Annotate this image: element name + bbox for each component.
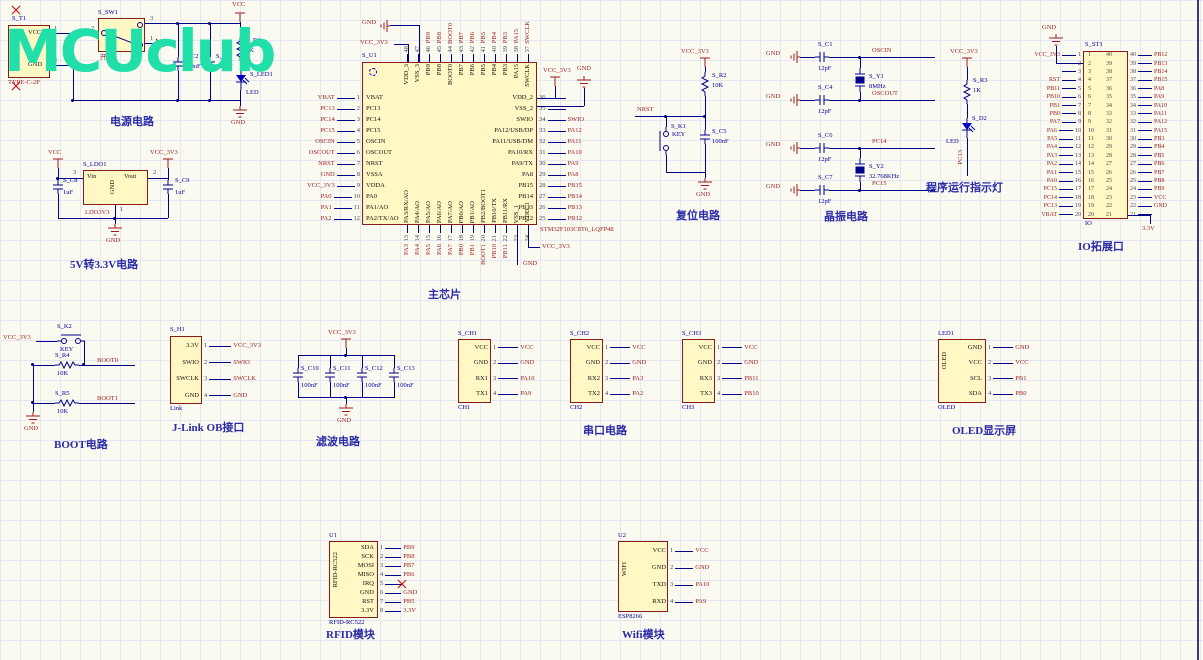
- pin-number: 7: [1086, 103, 1093, 109]
- net-label[interactable]: SWIO: [231, 360, 252, 367]
- net-label[interactable]: OSCOUT: [307, 150, 337, 157]
- net-label[interactable]: VCC_3V3: [950, 49, 978, 56]
- pin-name: SDA: [361, 545, 374, 552]
- pin-number: 9: [1076, 119, 1083, 125]
- net-label[interactable]: PA5: [426, 244, 433, 255]
- net-label[interactable]: PA3: [404, 244, 411, 255]
- pin-wire: [1059, 172, 1073, 173]
- pin-name: PA3/RX/AO: [404, 190, 411, 223]
- net-label[interactable]: PA10: [693, 582, 711, 589]
- net-label[interactable]: PB10: [1045, 94, 1062, 100]
- part-side-label: WIFI: [622, 562, 629, 576]
- pin-number: 2: [202, 360, 209, 367]
- schematic-sheet: S_T1 VCC GND 1 2 TYPE-C-2P S_SW1 2 3 1 开…: [0, 0, 1203, 660]
- section-caption: 5V转3.3V电路: [70, 260, 138, 271]
- net-label[interactable]: PA5: [1045, 136, 1059, 142]
- pin-number: 32: [1128, 119, 1138, 125]
- net-label[interactable]: GND: [106, 238, 120, 245]
- pin-wire: [385, 548, 401, 549]
- pin-name: PA10/RX: [508, 150, 533, 157]
- pin-name: VDDA: [366, 183, 385, 190]
- pin-number: 2: [668, 565, 675, 572]
- net-label[interactable]: PB1: [1048, 103, 1062, 109]
- gnd-symbol: [576, 76, 592, 88]
- net-label[interactable]: VCC: [693, 548, 710, 555]
- pin-wire: [1138, 113, 1152, 114]
- net-label[interactable]: GND: [362, 20, 376, 27]
- pin-number: 20: [1073, 212, 1083, 218]
- pin-number: 16: [1073, 178, 1083, 184]
- net-label[interactable]: PB0: [1048, 111, 1062, 117]
- net-label[interactable]: GND: [742, 360, 760, 367]
- pin-number: 5: [1086, 86, 1093, 92]
- pin-name: VCC: [475, 345, 488, 352]
- net-label[interactable]: PB8: [1152, 178, 1166, 184]
- section-caption: 程序运行指示灯: [926, 183, 1003, 194]
- wire: [394, 382, 395, 397]
- pin-number: 41: [481, 46, 488, 53]
- pin-wire: [1059, 206, 1073, 207]
- pin-wire: [993, 363, 1013, 364]
- pin-number: 27: [537, 194, 548, 201]
- designator: S_CH3: [682, 331, 701, 338]
- io-inside-left-numbers: 1234567891011121314151617181920: [1086, 51, 1098, 219]
- net-label[interactable]: PB9: [401, 545, 416, 552]
- net-label[interactable]: VCC_3V3: [150, 150, 178, 157]
- net-label[interactable]: VCC: [1013, 360, 1030, 367]
- value: KEY: [672, 132, 685, 139]
- net-label[interactable]: GND: [24, 426, 38, 433]
- junction-dot: [344, 354, 347, 357]
- wire: [362, 355, 363, 368]
- net-label[interactable]: OSCIN: [313, 139, 337, 146]
- net-label[interactable]: PA10: [1152, 103, 1169, 109]
- capacitor-symbol[interactable]: [815, 94, 829, 106]
- pin-number: 3: [491, 376, 498, 383]
- wire: [330, 355, 331, 368]
- wire: [168, 194, 169, 218]
- net-label[interactable]: PA0: [1045, 178, 1059, 184]
- pin-wire: [722, 363, 742, 364]
- net-label[interactable]: PC15: [1042, 186, 1059, 192]
- net-label[interactable]: VBAT: [1039, 212, 1059, 218]
- net-label[interactable]: PC14: [318, 117, 336, 124]
- net-label[interactable]: GND: [766, 184, 780, 191]
- pin-wire: [548, 153, 566, 154]
- net-label[interactable]: VCC: [232, 2, 245, 9]
- net-label[interactable]: PB9: [426, 32, 433, 43]
- net-label[interactable]: SWIO: [566, 117, 587, 124]
- net-label[interactable]: PB7: [401, 563, 416, 570]
- wire: [800, 57, 815, 58]
- net-label[interactable]: PB11: [742, 376, 760, 383]
- net-label[interactable]: PB5: [401, 599, 416, 606]
- pin-wire: [484, 225, 485, 233]
- net-label[interactable]: 3.3V: [401, 608, 418, 615]
- net-label[interactable]: VCC_3V3: [3, 335, 31, 342]
- net-label[interactable]: PB0: [1013, 391, 1028, 398]
- net-label[interactable]: PB3: [1152, 136, 1166, 142]
- pin-number: 14: [1073, 161, 1083, 167]
- net-label[interactable]: PB12: [1152, 52, 1169, 58]
- net-label[interactable]: VCC_3V3: [305, 183, 337, 190]
- pin-wire: [385, 575, 401, 576]
- pin-number: 8: [378, 608, 385, 615]
- pin-name: MISO: [358, 572, 374, 579]
- wire: [346, 397, 347, 404]
- net-label[interactable]: VCC_3V3: [360, 40, 388, 47]
- pin-wire: [495, 225, 496, 233]
- net-label[interactable]: PB8: [437, 32, 444, 43]
- net-label[interactable]: PA2: [630, 391, 645, 398]
- wire: [517, 225, 518, 265]
- value: 10K: [712, 83, 723, 90]
- net-label[interactable]: VCC: [630, 345, 647, 352]
- net-label[interactable]: PB10: [492, 244, 499, 258]
- net-label[interactable]: VCC_3V3: [543, 68, 571, 75]
- net-label[interactable]: PB5: [481, 32, 488, 43]
- net-label[interactable]: PB1: [470, 244, 477, 255]
- wire: [666, 155, 667, 172]
- net-label[interactable]: PC14: [1042, 195, 1059, 201]
- pin-name: PB1/AO: [470, 201, 477, 223]
- net-label[interactable]: PA4: [415, 244, 422, 255]
- key-button-symbol[interactable]: [658, 127, 670, 155]
- net-label[interactable]: PA15: [1152, 128, 1169, 134]
- designator: S_C6: [818, 133, 832, 140]
- sheet-border: [1197, 0, 1199, 660]
- capacitor-symbol[interactable]: [815, 142, 829, 154]
- net-label[interactable]: PB13: [566, 205, 584, 212]
- resistor-symbol[interactable]: [55, 361, 79, 369]
- pin-wire: [1062, 55, 1076, 56]
- pin-number: 38: [1128, 69, 1138, 75]
- value: 100nF: [712, 139, 729, 146]
- wire: [1128, 215, 1150, 216]
- gnd-symbol: [788, 182, 800, 198]
- wire: [58, 194, 59, 218]
- pin-number: 4: [378, 572, 385, 579]
- pin-wire: [1138, 197, 1152, 198]
- net-label[interactable]: OSCOUT: [872, 91, 898, 98]
- net-label[interactable]: PA9: [566, 161, 581, 168]
- pin-wire: [407, 225, 408, 233]
- pin-wire: [1138, 130, 1152, 131]
- pin-number: 1: [118, 207, 125, 214]
- net-label[interactable]: PB3: [503, 32, 510, 43]
- pin-number: 2: [151, 170, 158, 177]
- wifi-pin-names: VCCGNDTXDRXD: [641, 543, 666, 611]
- net-label[interactable]: PB9: [1152, 186, 1166, 192]
- pin-number: 29: [1104, 144, 1114, 150]
- pin-number: 22: [1104, 203, 1114, 209]
- net-label[interactable]: PB7: [1152, 170, 1166, 176]
- net-label[interactable]: PA4: [1045, 144, 1059, 150]
- key-button-symbol[interactable]: [57, 332, 85, 344]
- section-caption: 滤波电路: [316, 437, 360, 448]
- net-label[interactable]: GND: [1042, 25, 1056, 32]
- net-label[interactable]: PA2: [1045, 161, 1059, 167]
- pin-wire: [1138, 80, 1152, 81]
- designator: U2: [618, 533, 626, 540]
- net-label[interactable]: PC13: [318, 106, 336, 113]
- pin-wire: [1138, 164, 1152, 165]
- net-label[interactable]: GND: [518, 360, 536, 367]
- net-label[interactable]: PA2: [319, 216, 334, 223]
- designator: S_K2: [57, 324, 72, 331]
- net-label[interactable]: PB15: [566, 183, 584, 190]
- junction-dot: [208, 99, 211, 102]
- net-label[interactable]: PB4: [1152, 144, 1166, 150]
- wire: [829, 100, 935, 101]
- net-label[interactable]: GND: [766, 51, 780, 58]
- net-label[interactable]: VCC_3V3: [1032, 52, 1062, 58]
- wire: [394, 44, 408, 45]
- pin-number: 3: [668, 582, 675, 589]
- net-label[interactable]: GND: [523, 261, 537, 268]
- pin-wire: [337, 186, 355, 187]
- capacitor-symbol[interactable]: [162, 180, 174, 194]
- net-label[interactable]: PB8: [401, 554, 416, 561]
- pin-number: 22: [1128, 203, 1138, 209]
- net-label[interactable]: GND: [693, 565, 711, 572]
- net-label[interactable]: PB15: [1152, 77, 1169, 83]
- net-label[interactable]: GND: [630, 360, 648, 367]
- pin-name: Vout: [124, 174, 136, 181]
- pin-number: 11: [352, 205, 362, 212]
- pin-number: 26: [537, 205, 548, 212]
- net-label[interactable]: PB14: [566, 194, 584, 201]
- net-label[interactable]: PA15: [514, 29, 521, 43]
- pin-number: 2: [378, 554, 385, 561]
- designator: S_H1: [170, 327, 185, 334]
- resistor-symbol[interactable]: [963, 80, 971, 104]
- net-label[interactable]: VCC: [1152, 195, 1168, 201]
- crystal-symbol[interactable]: [853, 158, 867, 182]
- net-label[interactable]: GND: [231, 120, 245, 127]
- pin-wire: [1138, 155, 1152, 156]
- net-label[interactable]: VCC: [518, 345, 535, 352]
- net-label[interactable]: GND: [766, 142, 780, 149]
- wire: [635, 116, 705, 117]
- wire: [73, 100, 241, 101]
- net-label[interactable]: NRST: [316, 161, 337, 168]
- net-label[interactable]: PA0: [319, 194, 334, 201]
- net-label[interactable]: BOOT0: [97, 358, 118, 365]
- pin-wire: [1138, 105, 1152, 106]
- net-label[interactable]: PA12: [1152, 119, 1169, 125]
- net-label[interactable]: PB11: [503, 244, 510, 258]
- net-label[interactable]: VCC: [48, 150, 61, 157]
- pin-wire: [1138, 88, 1152, 89]
- net-label[interactable]: PB14: [1152, 69, 1169, 75]
- net-label[interactable]: GND: [337, 418, 351, 425]
- pin-number: 15: [1086, 170, 1096, 176]
- pin-number: 1: [986, 345, 993, 352]
- net-label[interactable]: PA6: [1045, 128, 1059, 134]
- capacitor-symbol[interactable]: [815, 184, 829, 196]
- pin-wire: [337, 164, 355, 165]
- net-label[interactable]: PA10: [566, 150, 584, 157]
- pin-name: IRQ: [363, 581, 374, 588]
- capacitor-symbol[interactable]: [699, 130, 711, 144]
- pin-number: 34: [537, 117, 548, 124]
- resistor-symbol[interactable]: [55, 399, 79, 407]
- pin-wire: [498, 347, 518, 348]
- mcu-left-pin-rows: VBAT1PC132PC143PC154OSCIN5OSCOUT6NRST7GN…: [294, 93, 362, 225]
- net-label[interactable]: PB5: [1152, 153, 1166, 159]
- net-label[interactable]: GND: [696, 192, 710, 199]
- net-label[interactable]: VCC_3V3: [681, 49, 709, 56]
- net-label[interactable]: PB12: [566, 216, 584, 223]
- net-label[interactable]: GND: [766, 94, 780, 101]
- net-label[interactable]: GND: [401, 590, 419, 597]
- net-label[interactable]: VCC: [742, 345, 759, 352]
- pin-wire: [1138, 147, 1152, 148]
- net-label[interactable]: PA10: [518, 376, 536, 383]
- net-label[interactable]: VCC_3V3: [542, 244, 570, 251]
- net-label[interactable]: PB6: [1152, 161, 1166, 167]
- net-label[interactable]: PA6: [437, 244, 444, 255]
- net-label[interactable]: PB6: [401, 572, 416, 579]
- pin-wire: [1062, 63, 1076, 64]
- mcu-top-pin-cols: 4847PB946PB845BOOT044PB743PB642PB541PB44…: [402, 8, 534, 62]
- mcu-right-pin-rows: 363534SWIO33PA1232PA1131PA1030PA929PA828…: [537, 93, 611, 225]
- pin-wire: [209, 395, 231, 396]
- net-label[interactable]: PC14: [872, 139, 886, 146]
- pin-number: 17: [1086, 186, 1096, 192]
- wire: [115, 205, 116, 218]
- value: 10K: [57, 371, 68, 378]
- net-label[interactable]: PA1: [1045, 170, 1059, 176]
- pin-number: 2: [715, 360, 722, 367]
- net-label[interactable]: PC15: [318, 128, 336, 135]
- pin-number: 20: [481, 235, 488, 242]
- pin-number: 39: [1104, 61, 1114, 67]
- net-label[interactable]: PA3: [1045, 153, 1059, 159]
- pin-name: Vin: [87, 174, 96, 181]
- net-label[interactable]: PB6: [470, 32, 477, 43]
- net-label[interactable]: VCC_3V3: [328, 330, 356, 337]
- wire: [705, 144, 706, 172]
- pin-wire: [548, 120, 566, 121]
- io-left-pin-rows: VCC_3V3123RST4PB115PB106PB17PB08PA79PA61…: [1014, 51, 1083, 219]
- wire: [168, 168, 169, 180]
- resistor-symbol[interactable]: [701, 72, 709, 96]
- pin-name: PC14: [366, 117, 380, 124]
- pin-name: OSCOUT: [366, 150, 392, 157]
- net-label[interactable]: BOOT1: [481, 244, 488, 265]
- net-label[interactable]: GND: [577, 66, 591, 73]
- pin-name: SCL: [970, 376, 982, 383]
- net-label[interactable]: PA7: [1048, 119, 1062, 125]
- net-label[interactable]: PB13: [1152, 61, 1169, 67]
- net-label[interactable]: PA3: [630, 376, 645, 383]
- pin-number: 15: [426, 235, 433, 242]
- part-comment: ESP8266: [618, 614, 642, 621]
- pin-wire: [506, 225, 507, 233]
- net-label[interactable]: PA7: [448, 244, 455, 255]
- pin-number: 2: [355, 106, 362, 113]
- net-label[interactable]: 3.3V: [1142, 226, 1155, 233]
- wire: [528, 247, 540, 248]
- pin-wire: [675, 551, 693, 552]
- net-label[interactable]: PB1: [1013, 376, 1028, 383]
- net-label[interactable]: PB0: [459, 244, 466, 255]
- pin-wire: [209, 379, 231, 380]
- capacitor-symbol[interactable]: [815, 51, 829, 63]
- net-label[interactable]: PA8: [566, 172, 581, 179]
- net-label[interactable]: VBAT: [316, 95, 337, 102]
- vcc-bar-symbol: [162, 158, 174, 168]
- pin-name: SDA: [969, 391, 982, 398]
- net-label[interactable]: GND: [231, 393, 249, 400]
- pin-name: VBAT: [366, 95, 383, 102]
- pin-number: 31: [537, 150, 548, 157]
- wire: [829, 57, 935, 58]
- net-label[interactable]: PB10: [742, 391, 760, 398]
- value: 1uF: [175, 190, 185, 197]
- net-label[interactable]: GND: [319, 172, 337, 179]
- pin-wire: [209, 362, 231, 363]
- designator: S_K1: [671, 124, 686, 131]
- net-label[interactable]: RST: [1047, 77, 1062, 83]
- net-label[interactable]: VCC_3V3: [231, 343, 263, 350]
- net-label[interactable]: PC13: [1042, 203, 1059, 209]
- crystal-symbol[interactable]: [853, 68, 867, 92]
- pin-number: 3: [1086, 69, 1093, 75]
- net-label[interactable]: PA1: [319, 205, 334, 212]
- net-label[interactable]: PB11: [1045, 86, 1062, 92]
- net-label[interactable]: BOOT0: [448, 23, 455, 44]
- net-label[interactable]: SWCLK: [231, 376, 258, 383]
- pin-number: 38: [1104, 69, 1114, 75]
- net-label[interactable]: BOOT1: [97, 396, 118, 403]
- net-label[interactable]: NRST: [637, 107, 654, 114]
- wire: [800, 148, 815, 149]
- pin-wire: [209, 346, 231, 347]
- pin-number: 3: [355, 117, 362, 124]
- value: 12pF: [818, 157, 831, 164]
- net-label[interactable]: PA12: [566, 128, 584, 135]
- pin-number: 13: [1086, 153, 1096, 159]
- net-label[interactable]: GND: [1013, 345, 1031, 352]
- net-label[interactable]: PA11: [1152, 111, 1169, 117]
- pin-number: 38: [514, 46, 521, 53]
- designator: S_ST1: [1085, 42, 1103, 49]
- net-label[interactable]: OSCIN: [872, 48, 892, 55]
- net-label[interactable]: PA8: [1152, 86, 1166, 92]
- pin-wire: [495, 54, 496, 62]
- pin-wire: [440, 54, 441, 62]
- net-label[interactable]: PB4: [492, 32, 499, 43]
- net-label[interactable]: PB7: [459, 32, 466, 43]
- net-label[interactable]: PA9: [518, 391, 533, 398]
- designator: S_C4: [818, 85, 832, 92]
- junction-dot: [176, 99, 179, 102]
- ch3-pin-rows: 1VCC2GND3PB114PB10: [715, 340, 793, 402]
- net-label[interactable]: GND: [1152, 203, 1169, 209]
- pin-number: 16: [1086, 178, 1096, 184]
- pin-number: 43: [459, 46, 466, 53]
- net-label[interactable]: PA9: [693, 599, 708, 606]
- net-label[interactable]: PA11: [566, 139, 584, 146]
- pin-wire: [1059, 197, 1073, 198]
- net-label[interactable]: SWCLK: [525, 21, 532, 44]
- net-label[interactable]: PC13: [958, 150, 965, 164]
- net-label[interactable]: PA9: [1152, 94, 1166, 100]
- net-label[interactable]: PC15: [872, 181, 886, 188]
